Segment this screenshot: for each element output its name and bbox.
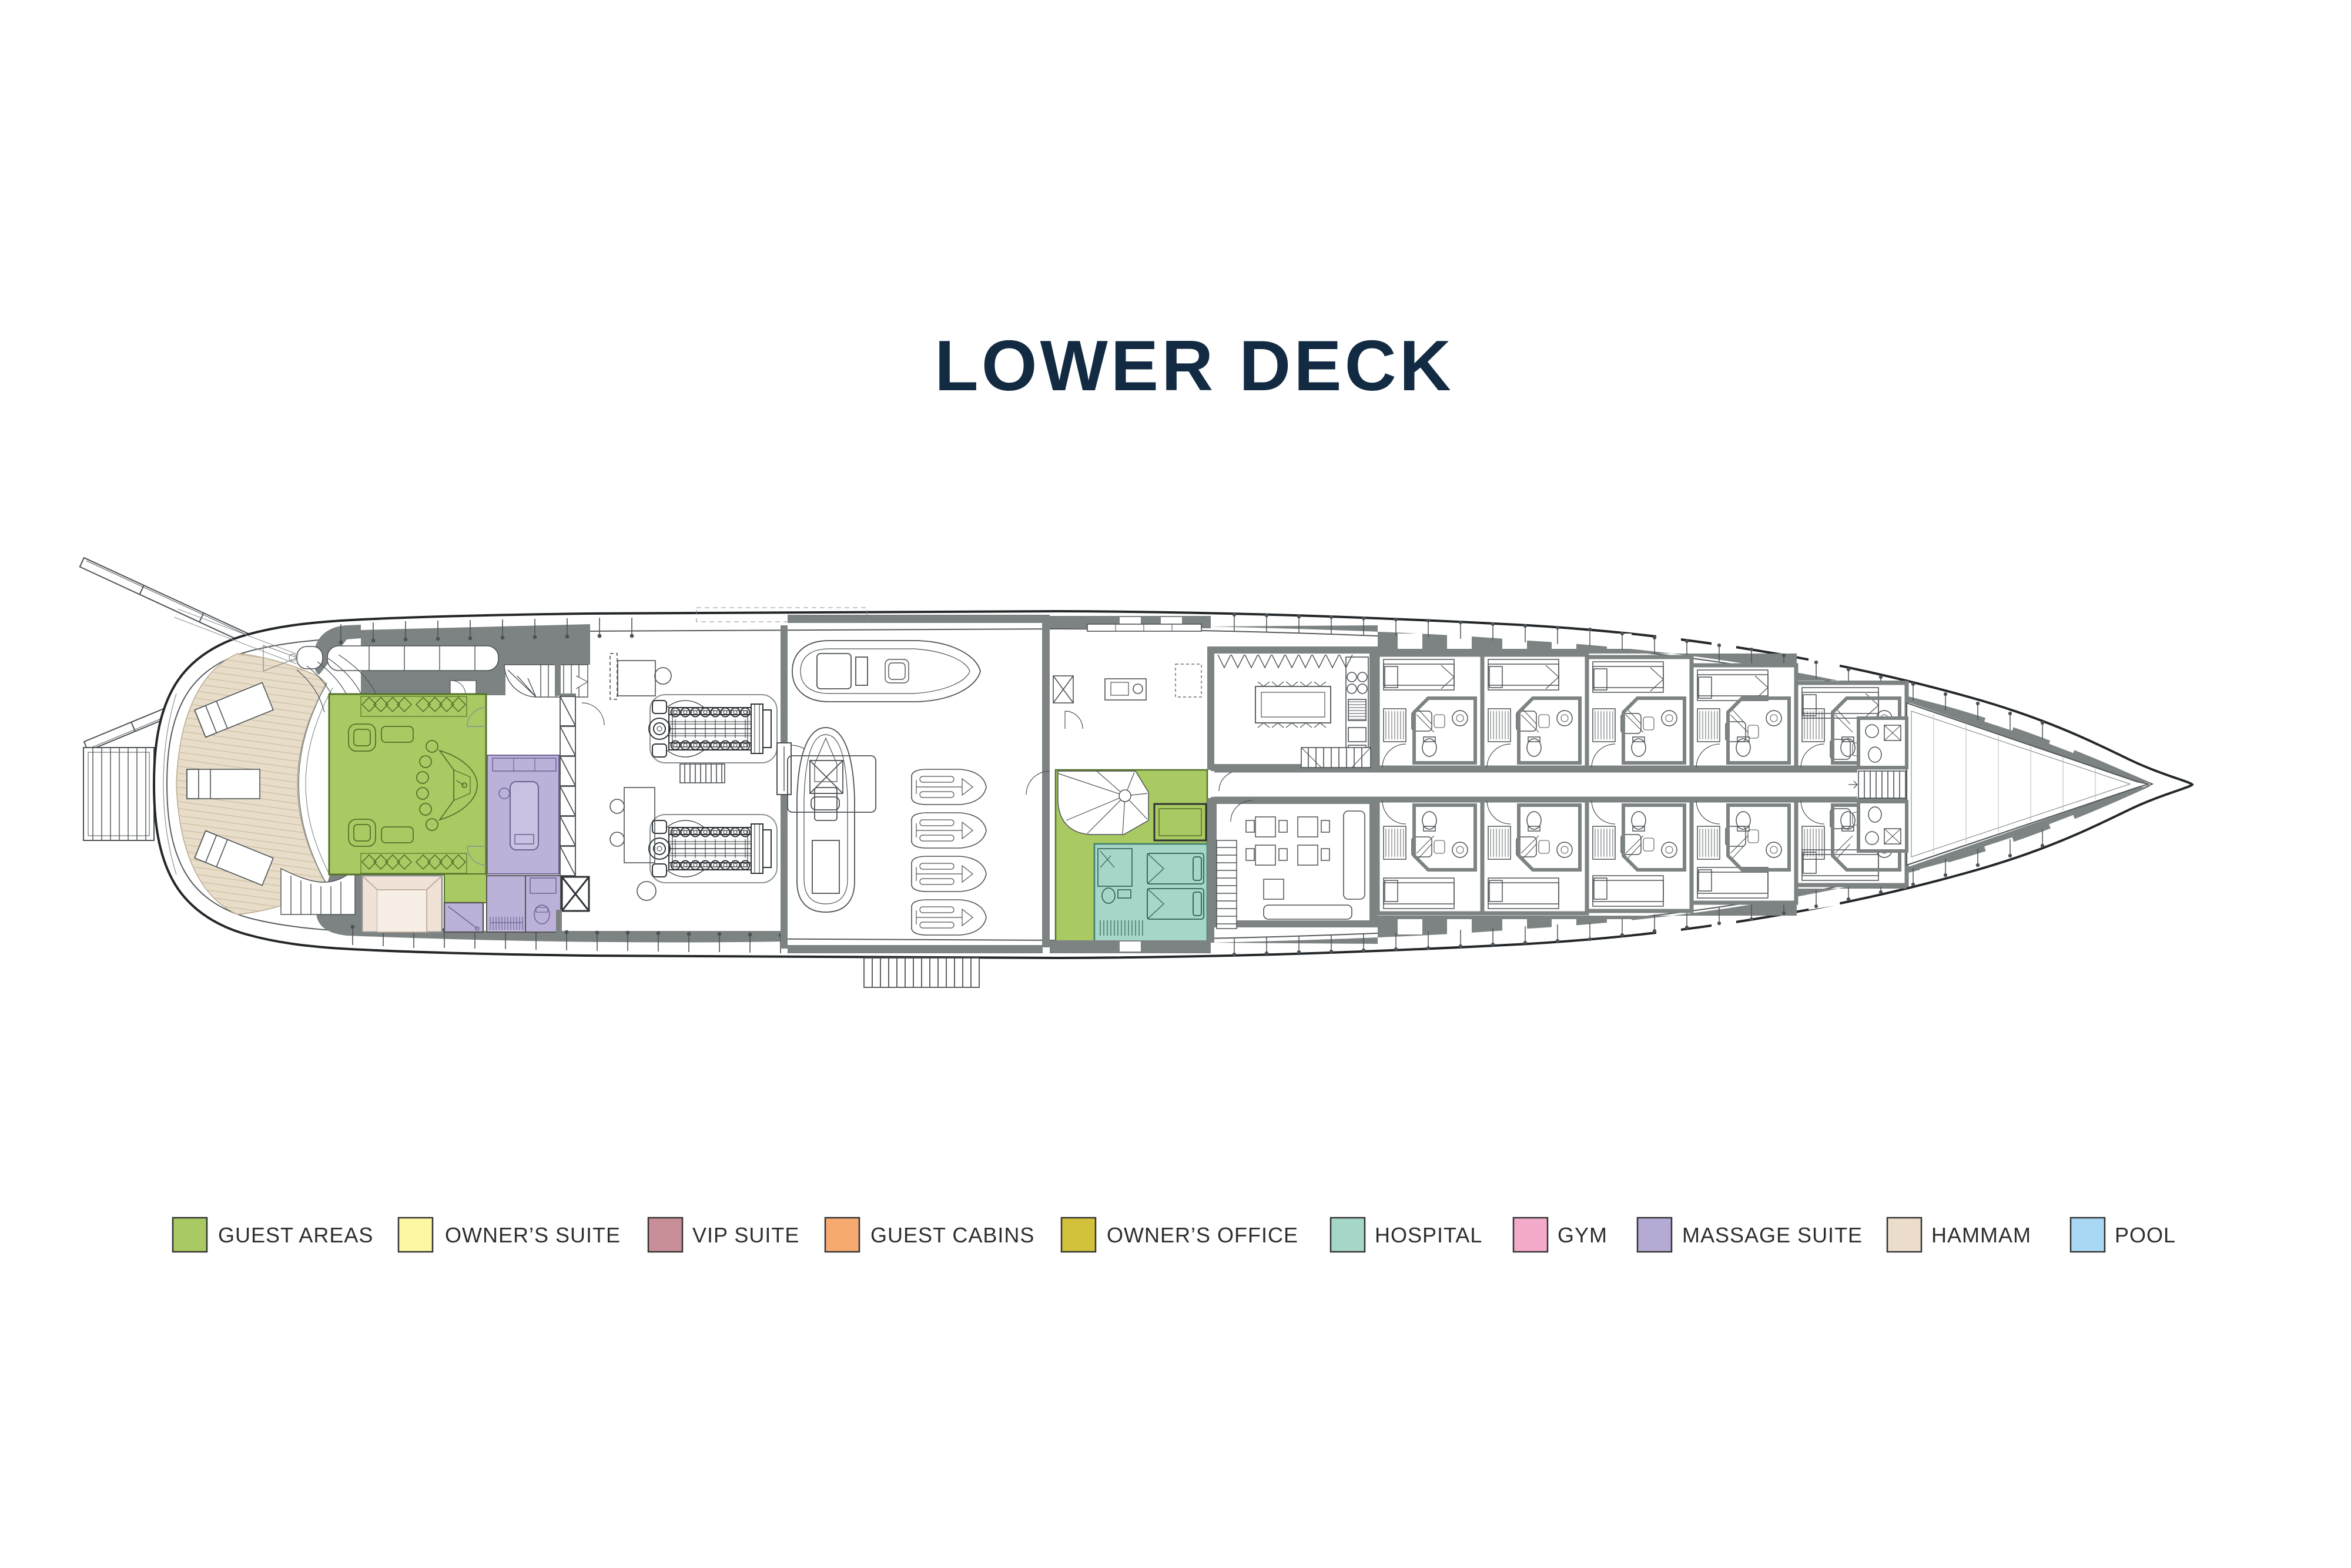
svg-text:VIP SUITE: VIP SUITE [692, 1223, 799, 1247]
svg-text:HOSPITAL: HOSPITAL [1375, 1223, 1482, 1247]
svg-text:POOL: POOL [2115, 1223, 2176, 1247]
svg-text:GUEST CABINS: GUEST CABINS [870, 1223, 1034, 1247]
svg-text:HAMMAM: HAMMAM [1931, 1223, 2031, 1247]
svg-text:GUEST AREAS: GUEST AREAS [218, 1223, 373, 1247]
svg-text:OWNER’S OFFICE: OWNER’S OFFICE [1107, 1223, 1298, 1247]
svg-text:MASSAGE SUITE: MASSAGE SUITE [1682, 1223, 1863, 1247]
svg-text:LOWER DECK: LOWER DECK [935, 326, 1454, 406]
svg-text:OWNER’S SUITE: OWNER’S SUITE [445, 1223, 621, 1247]
svg-text:GYM: GYM [1558, 1223, 1607, 1247]
